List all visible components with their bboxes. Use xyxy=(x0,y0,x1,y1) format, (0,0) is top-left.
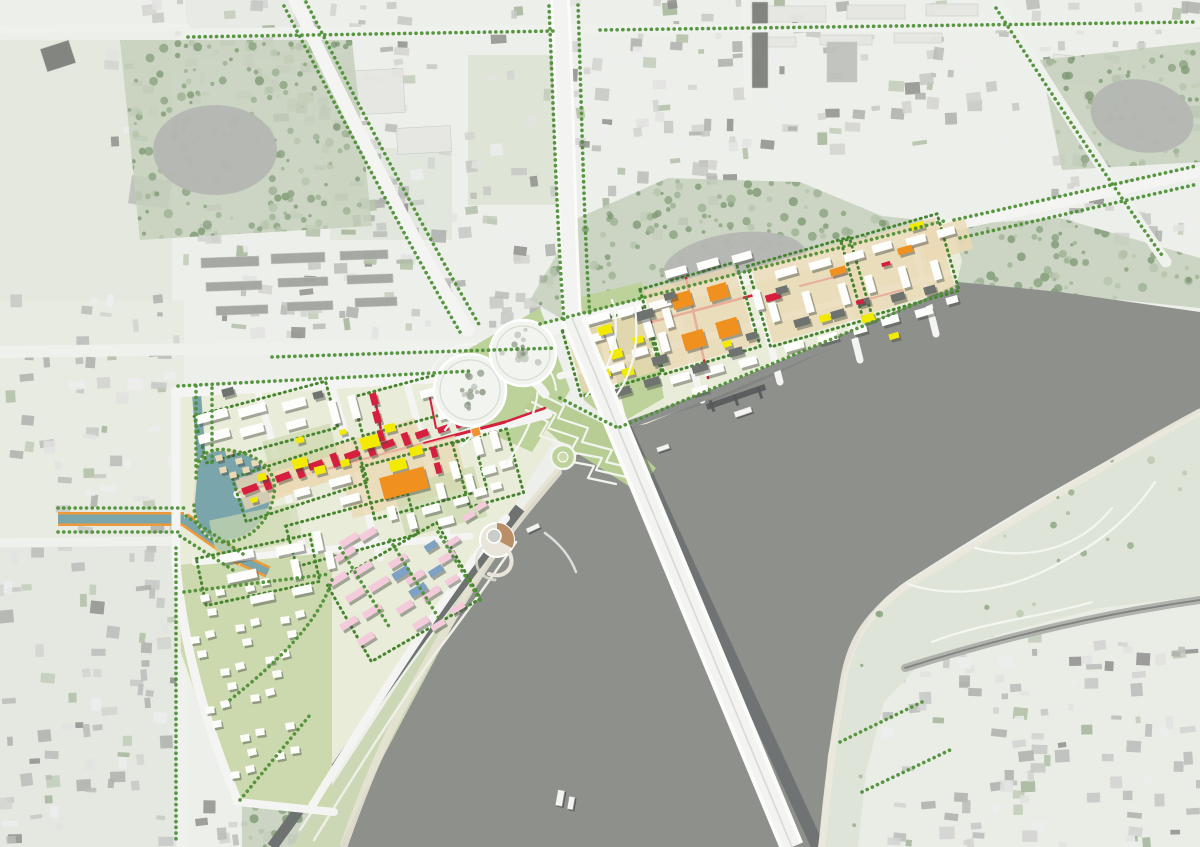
masterplan-svg xyxy=(0,0,1200,847)
masterplan-map xyxy=(0,0,1200,847)
